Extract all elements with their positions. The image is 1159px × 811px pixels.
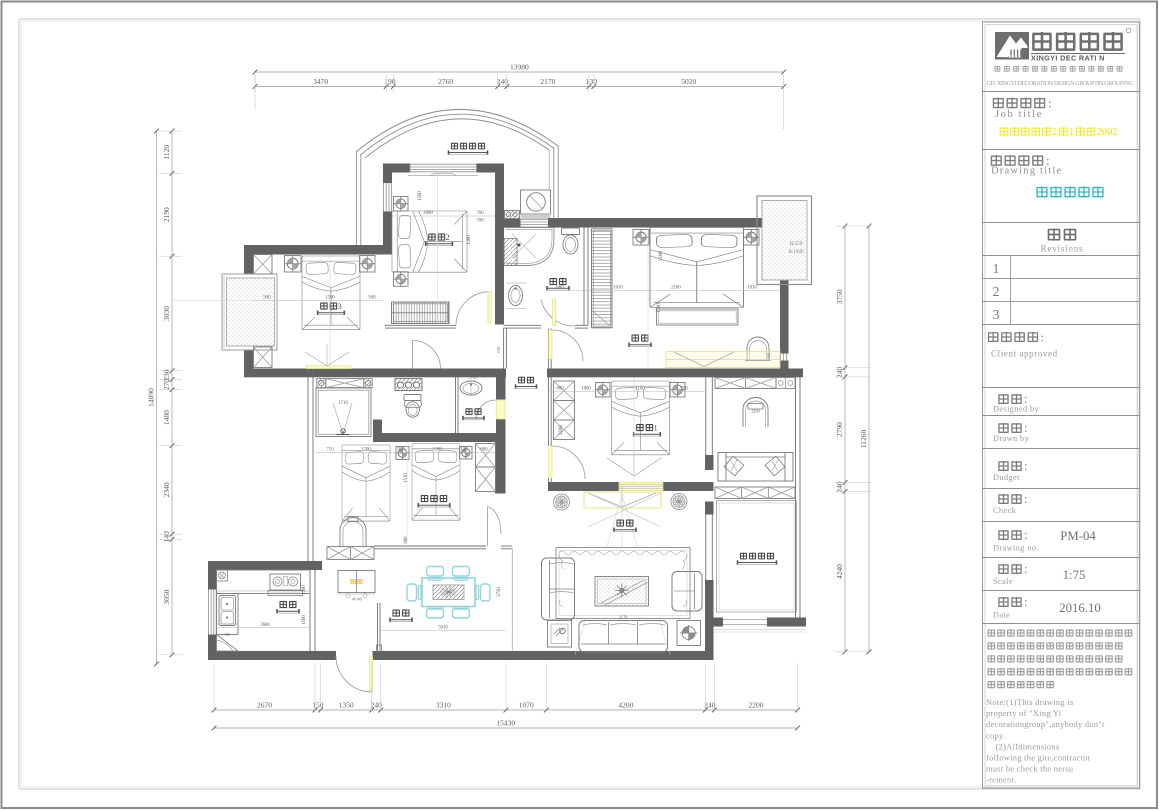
svg-text:2000: 2000 xyxy=(423,211,433,216)
svg-text:190: 190 xyxy=(384,77,396,86)
svg-text:1350: 1350 xyxy=(339,701,354,710)
svg-text:3: 3 xyxy=(338,302,342,311)
svg-text:100: 100 xyxy=(224,632,230,637)
svg-text:240: 240 xyxy=(704,701,716,710)
svg-text:1070: 1070 xyxy=(519,701,534,710)
svg-text:decorationgroup",anybody don"t: decorationgroup",anybody don"t xyxy=(986,720,1105,729)
svg-text:240: 240 xyxy=(835,366,844,378)
svg-text::: : xyxy=(1024,528,1027,542)
svg-text:Job title: Job title xyxy=(995,109,1043,120)
svg-text:940: 940 xyxy=(368,296,376,301)
svg-text:2100: 2100 xyxy=(659,251,664,261)
svg-text:Dudget: Dudget xyxy=(993,473,1020,482)
svg-text:Drawing no.: Drawing no. xyxy=(993,544,1039,553)
svg-text:950: 950 xyxy=(680,387,688,392)
svg-text:1010: 1010 xyxy=(613,286,623,291)
svg-text:5020: 5020 xyxy=(681,77,696,86)
svg-text:2170: 2170 xyxy=(540,77,555,86)
svg-text:1710: 1710 xyxy=(338,401,348,406)
svg-text:150: 150 xyxy=(496,347,501,353)
svg-text:4240: 4240 xyxy=(835,564,844,579)
svg-text:14090: 14090 xyxy=(147,388,156,407)
svg-text:Drawn by: Drawn by xyxy=(993,434,1030,443)
svg-text:XINGYI: XINGYI xyxy=(1004,55,1015,59)
svg-text:1200: 1200 xyxy=(361,448,371,453)
svg-text:140: 140 xyxy=(162,531,171,543)
svg-text:3600: 3600 xyxy=(260,623,270,628)
svg-text:700: 700 xyxy=(476,211,484,216)
svg-text:1500: 1500 xyxy=(325,296,335,301)
svg-text:4200: 4200 xyxy=(618,701,633,710)
svg-text::: : xyxy=(1041,331,1044,345)
svg-text:2002: 2002 xyxy=(1097,127,1118,138)
svg-text:-rement.: -rement. xyxy=(986,776,1017,785)
svg-text::: : xyxy=(1024,421,1027,435)
svg-text:2190: 2190 xyxy=(162,207,171,222)
svg-text:240: 240 xyxy=(835,481,844,493)
svg-text:Designed by: Designed by xyxy=(993,405,1040,414)
svg-text:1100: 1100 xyxy=(635,387,645,392)
svg-text:1500: 1500 xyxy=(418,191,423,201)
svg-text:240: 240 xyxy=(497,77,509,86)
svg-text::: : xyxy=(1048,96,1052,111)
svg-text:2: 2 xyxy=(446,233,450,242)
svg-text:3050: 3050 xyxy=(162,589,171,604)
svg-text:1000: 1000 xyxy=(581,387,591,392)
svg-text:2016.10: 2016.10 xyxy=(1059,601,1101,615)
svg-text:3310: 3310 xyxy=(436,701,451,710)
svg-text:1300: 1300 xyxy=(302,585,307,595)
svg-text:Client approved: Client approved xyxy=(991,349,1058,359)
svg-text:11260: 11260 xyxy=(859,429,868,448)
svg-text:710: 710 xyxy=(326,448,334,453)
svg-text:950: 950 xyxy=(397,448,405,453)
svg-text:600: 600 xyxy=(480,448,488,453)
svg-text:2100: 2100 xyxy=(671,286,681,291)
svg-text:PM-04: PM-04 xyxy=(1060,529,1096,543)
svg-text:1: 1 xyxy=(993,262,1000,277)
svg-text:property of "Xing Yi: property of "Xing Yi xyxy=(986,709,1062,718)
svg-text::: : xyxy=(1024,562,1027,576)
svg-text:940: 940 xyxy=(263,296,271,301)
svg-text:40 40: 40 40 xyxy=(352,597,361,602)
svg-text:2340: 2340 xyxy=(162,482,171,497)
svg-text:3030: 3030 xyxy=(162,306,171,321)
svg-text:Revisions: Revisions xyxy=(1041,244,1084,254)
svg-text:3: 3 xyxy=(993,308,1000,323)
svg-text:1510: 1510 xyxy=(404,473,409,483)
svg-text:1200: 1200 xyxy=(432,448,442,453)
svg-text:13980: 13980 xyxy=(510,63,529,72)
svg-text:(2)AlIdimensions: (2)AlIdimensions xyxy=(986,742,1059,751)
svg-text:130: 130 xyxy=(586,77,598,86)
svg-text:1:75: 1:75 xyxy=(1063,568,1086,582)
svg-text:1: 1 xyxy=(654,424,658,433)
svg-text:1500: 1500 xyxy=(302,615,307,625)
svg-text:Check: Check xyxy=(993,506,1017,515)
svg-text:3178: 3178 xyxy=(619,615,629,620)
svg-text:3470: 3470 xyxy=(313,77,328,86)
svg-text:15430: 15430 xyxy=(496,719,515,728)
svg-text:600: 600 xyxy=(556,387,564,392)
svg-text:Note:(1)This drawing is: Note:(1)This drawing is xyxy=(986,698,1073,707)
svg-text:120: 120 xyxy=(766,353,771,359)
svg-text:Drawing title: Drawing title xyxy=(991,166,1062,177)
svg-text:2200: 2200 xyxy=(751,409,759,414)
svg-text:880: 880 xyxy=(404,536,409,544)
svg-text::: : xyxy=(1024,492,1027,506)
svg-text:270: 270 xyxy=(162,379,171,391)
svg-text:1480: 1480 xyxy=(162,410,171,425)
svg-text:708: 708 xyxy=(476,219,484,224)
svg-text:folIowing the gite,contractor: folIowing the gite,contractor xyxy=(986,754,1091,763)
svg-text:2: 2 xyxy=(993,285,1000,300)
svg-text:1: 1 xyxy=(1069,127,1074,138)
svg-text:Date: Date xyxy=(993,611,1010,620)
svg-text:2200: 2200 xyxy=(748,701,763,710)
svg-text:GD. XINGYI DECORATION DESIGN G: GD. XINGYI DECORATION DESIGN GROUP HN.GR… xyxy=(987,81,1134,87)
svg-text:1100: 1100 xyxy=(468,376,478,381)
svg-text:must be check the nersu: must be check the nersu xyxy=(986,765,1074,774)
svg-text:copy.: copy. xyxy=(986,731,1005,740)
svg-text:XINGYI DEC RATI N: XINGYI DEC RATI N xyxy=(1031,54,1105,63)
svg-text:240: 240 xyxy=(371,701,383,710)
svg-text:B:550: B:550 xyxy=(790,241,803,247)
svg-text:2: 2 xyxy=(1052,127,1057,138)
svg-text:1120: 1120 xyxy=(162,145,171,160)
svg-text::: : xyxy=(1024,459,1027,473)
svg-text:600: 600 xyxy=(556,286,564,291)
svg-text:130: 130 xyxy=(460,448,468,453)
svg-text:1010: 1010 xyxy=(747,286,757,291)
svg-text::: : xyxy=(1024,595,1027,609)
svg-text:2790: 2790 xyxy=(835,422,844,437)
svg-text:1200: 1200 xyxy=(467,235,472,245)
svg-text:2670: 2670 xyxy=(257,701,272,710)
svg-text:B:1920: B:1920 xyxy=(788,249,804,255)
svg-text:5010: 5010 xyxy=(438,626,448,631)
svg-text:1700: 1700 xyxy=(657,303,662,313)
svg-text:2750: 2750 xyxy=(497,587,502,597)
svg-text:3750: 3750 xyxy=(835,289,844,304)
svg-text:150: 150 xyxy=(312,701,324,710)
svg-text:2760: 2760 xyxy=(438,77,453,86)
svg-text:2100: 2100 xyxy=(559,425,564,435)
svg-text:Scale: Scale xyxy=(993,577,1013,586)
